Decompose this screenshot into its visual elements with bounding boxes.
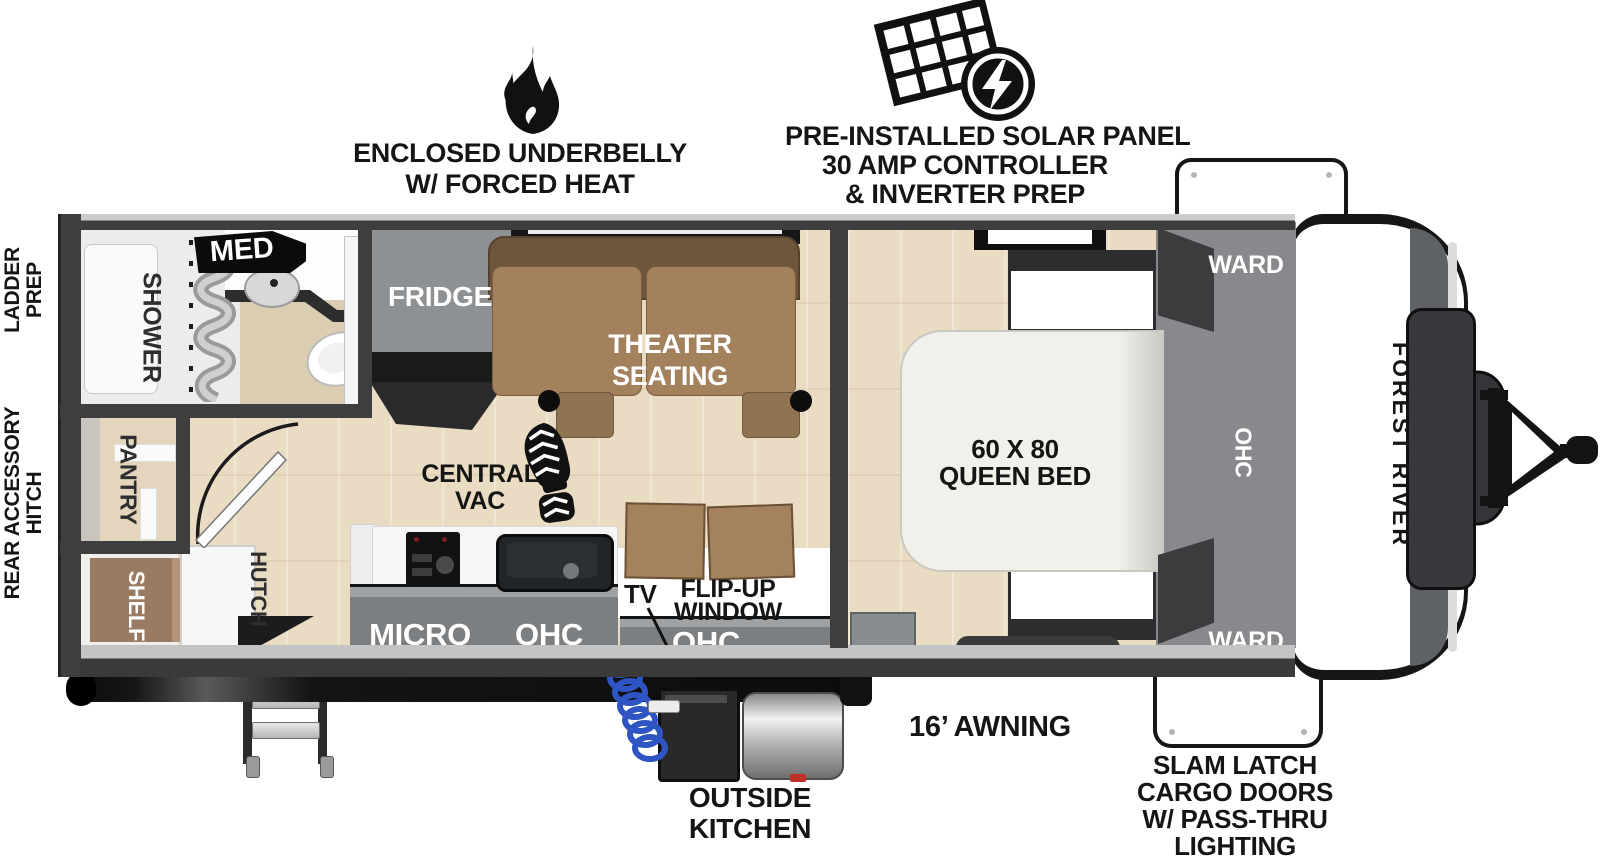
cargo-line3: W/ PASS-THRU: [1105, 806, 1365, 833]
forest-river-brand: FOREST RIVER: [1383, 295, 1413, 595]
stove-knob: [414, 537, 419, 542]
queen-bed-label: 60 X 80 QUEEN BED: [890, 436, 1140, 490]
floorplan-diagram: ENCLOSED UNDERBELLY W/ FORCED HEAT PRE-I…: [0, 0, 1600, 860]
rear-hitch-line1: REAR ACCESSORY: [2, 373, 24, 633]
rear-accessory-hitch-callout: REAR ACCESSORY HITCH: [2, 373, 46, 633]
ottoman-stool: [624, 502, 705, 579]
cupholder-icon: [538, 390, 560, 412]
fridge-base: [368, 352, 508, 382]
step-foot: [246, 756, 260, 778]
ohc-bedroom-label: OHC: [1231, 392, 1256, 512]
solar-callout: PRE-INSTALLED SOLAR PANEL 30 AMP CONTROL…: [785, 122, 1145, 209]
wall-bottom: [60, 645, 1295, 677]
pantry-shelf: [140, 488, 157, 540]
bed-label-line1: 60 X 80: [890, 436, 1140, 463]
theater-label-line1: THEATER: [545, 328, 795, 360]
bed-label-line2: QUEEN BED: [890, 463, 1140, 490]
stove-grate: [412, 554, 432, 562]
kitchen-sink: [496, 534, 614, 592]
cargo-doors-callout: SLAM LATCH CARGO DOORS W/ PASS-THRU LIGH…: [1105, 752, 1365, 860]
screw-icon: [1191, 172, 1197, 178]
outside-kitchen-line1: OUTSIDE: [650, 782, 850, 813]
wall-bedroom-divider: [830, 222, 848, 648]
pantry-side: [78, 418, 100, 542]
sink-drain-icon: [270, 279, 278, 287]
solar-line2: 30 AMP CONTROLLER: [785, 151, 1145, 180]
ward-top-label: WARD: [1186, 252, 1306, 279]
stove-cooktop: [406, 532, 460, 586]
outside-kitchen-tank: [742, 692, 844, 780]
cargo-line1: SLAM LATCH: [1105, 752, 1365, 779]
ladder-prep-line2: PREP: [24, 210, 46, 370]
awning-label: 16’ AWNING: [900, 712, 1080, 743]
stove-burner: [436, 556, 454, 574]
underbelly-line1: ENCLOSED UNDERBELLY: [310, 138, 730, 169]
flame-icon: [495, 44, 559, 136]
bedroom-window-frame: [1008, 250, 1156, 268]
wall-top: [60, 214, 1295, 230]
step-foot: [320, 756, 334, 778]
solar-line3: & INVERTER PREP: [785, 180, 1145, 209]
wall-bathroom-right: [358, 222, 372, 414]
rear-hitch-line2: HITCH: [24, 373, 46, 633]
outside-kitchen-line2: KITCHEN: [650, 813, 850, 844]
screw-icon: [1169, 729, 1175, 735]
stove-grate: [412, 568, 432, 576]
screw-icon: [1326, 172, 1332, 178]
propane-cover: [1406, 308, 1476, 590]
screw-icon: [1301, 729, 1307, 735]
ladder-prep-line1: LADDER: [2, 210, 24, 370]
pantry-label: PANTRY: [116, 414, 141, 544]
underbelly-callout: ENCLOSED UNDERBELLY W/ FORCED HEAT: [310, 138, 730, 200]
wall-rear: [58, 214, 81, 677]
fridge-door-open: [370, 382, 508, 432]
solar-panel-icon: [868, 0, 1050, 126]
sink-drain-icon: [563, 563, 579, 579]
bathroom-sink: [244, 268, 300, 308]
outside-faucet: [648, 700, 680, 713]
wall-bathroom-bottom: [60, 404, 372, 418]
fridge-label: FRIDGE: [375, 282, 505, 312]
curtain-track: [189, 240, 193, 400]
stove-knob: [442, 537, 447, 542]
ottoman-stool: [707, 504, 796, 581]
vent-glass: [988, 228, 1092, 244]
entry-door-swing: [192, 418, 307, 548]
underbelly-line2: W/ FORCED HEAT: [310, 169, 730, 200]
cargo-line4: LIGHTING: [1105, 833, 1365, 860]
solar-line1: PRE-INSTALLED SOLAR PANEL: [785, 122, 1145, 151]
theater-seating-label: THEATER SEATING: [545, 328, 795, 392]
shower-label: SHOWER: [138, 253, 165, 403]
theater-label-line2: SEATING: [545, 360, 795, 392]
awning-end-cap: [66, 672, 96, 706]
hutch-label: HUTCH: [246, 534, 270, 644]
med-label: MED: [209, 233, 275, 269]
cargo-line2: CARGO DOORS: [1105, 779, 1365, 806]
cupholder-icon: [790, 390, 812, 412]
wall-pantry-bottom: [60, 541, 190, 554]
sink-basin: [507, 542, 597, 578]
ladder-prep-callout: LADDER PREP: [2, 210, 46, 370]
outside-kitchen-label: OUTSIDE KITCHEN: [650, 782, 850, 844]
step-tread: [252, 722, 320, 739]
wall-pantry-right: [176, 404, 190, 554]
bedroom-window-top: [1008, 268, 1156, 332]
tank-valve: [790, 774, 806, 782]
